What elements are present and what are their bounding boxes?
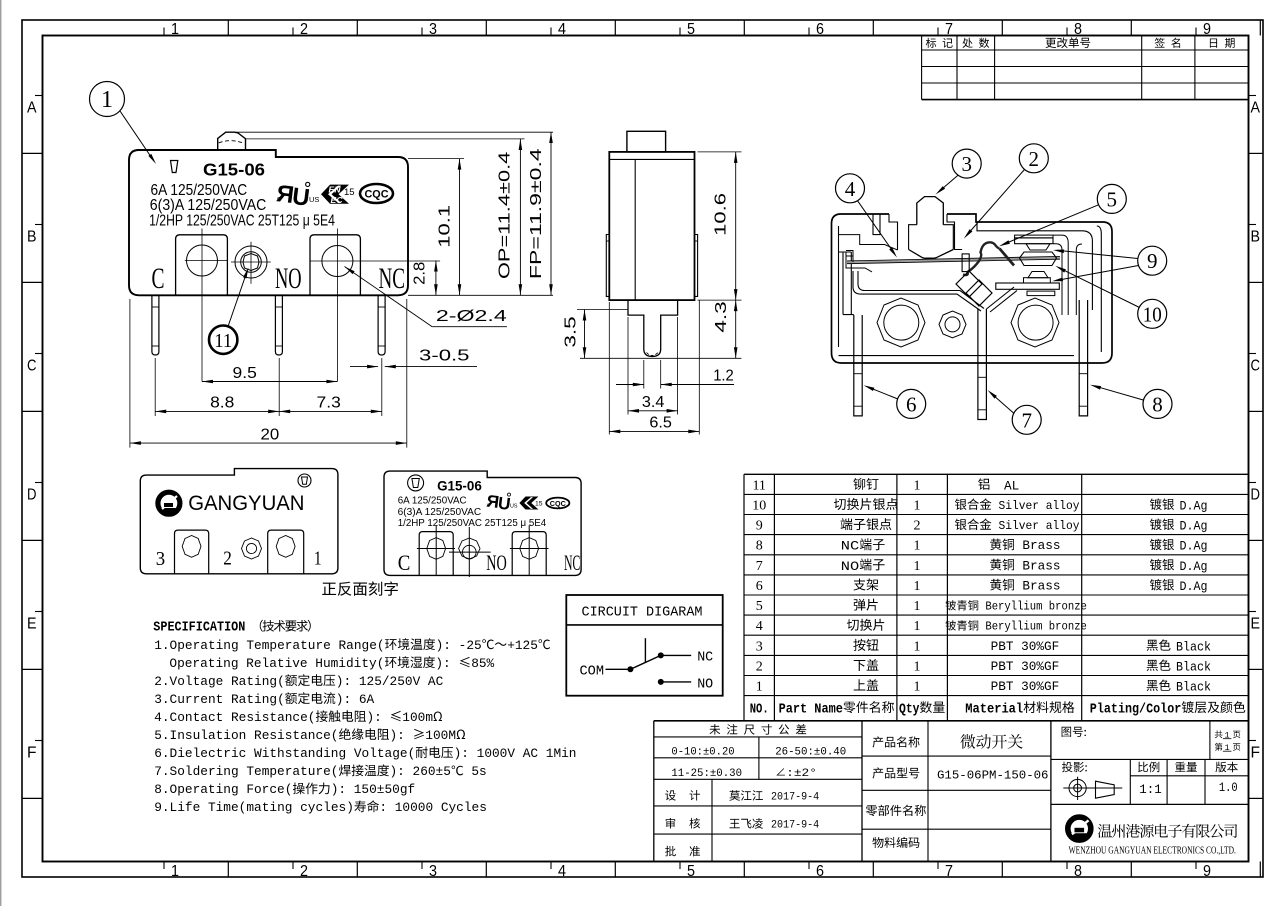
svg-text:4: 4 [845,177,856,201]
svg-text:8.Operating Force(: 8.Operating Force( [154,782,292,797]
svg-text:): 260±5: ): 260±5 [390,764,451,779]
svg-text:c: c [277,194,281,203]
svg-text:E: E [1251,616,1261,633]
svg-text:11: 11 [752,478,765,493]
svg-text:1: 1 [914,619,921,634]
svg-text:G15-06PM-150-06: G15-06PM-150-06 [937,768,1049,782]
svg-text:1.0: 1.0 [1219,781,1238,795]
svg-text:1: 1 [914,539,921,554]
svg-text:WENZHOU GANGYUAN ELECTRONICS C: WENZHOU GANGYUAN ELECTRONICS CO.,LTD. [1069,846,1236,857]
svg-text:: 10000 Cycles: : 10000 Cycles [379,800,487,815]
svg-text:6A 125/250VAC: 6A 125/250VAC [398,496,467,507]
svg-text:NO: NO [275,262,302,295]
svg-text:2.8: 2.8 [412,262,429,285]
svg-text:1: 1 [171,21,179,38]
svg-text:GANGYUAN: GANGYUAN [188,492,304,515]
svg-text:9: 9 [1203,863,1211,880]
svg-text:Qty: Qty [899,703,920,718]
svg-text:C: C [398,550,411,575]
svg-text:6.5: 6.5 [649,415,672,432]
svg-text:4: 4 [756,619,763,634]
svg-text:Silver alloy: Silver alloy [992,499,1080,513]
svg-text:5: 5 [687,21,695,38]
svg-text:7: 7 [945,21,953,38]
svg-text:5s: 5s [464,764,487,779]
svg-text:2.Voltage Rating(: 2.Voltage Rating( [154,674,285,689]
svg-text:5: 5 [756,599,763,614]
svg-text:F: F [1251,745,1261,762]
svg-text:4: 4 [558,863,566,880]
svg-text:15: 15 [535,500,543,507]
svg-text:26-50:±0.40: 26-50:±0.40 [775,747,846,759]
svg-text:Beryllium bronze: Beryllium bronze [979,621,1087,634]
svg-text:6: 6 [756,579,763,594]
svg-text:7.Soldering Temperature(: 7.Soldering Temperature( [154,764,338,779]
svg-text:1: 1 [914,660,921,675]
svg-text:Black: Black [1176,640,1211,654]
svg-text:5: 5 [1107,187,1118,211]
svg-text:PBT 30%GF: PBT 30%GF [991,679,1060,694]
svg-text:):: ): [390,728,413,743]
svg-text:7: 7 [756,559,763,574]
svg-text:8: 8 [1074,863,1082,880]
svg-text:NO: NO [486,550,507,575]
svg-text:D: D [27,487,37,504]
svg-text:EN: EN [329,185,342,195]
svg-text:1: 1 [914,680,921,695]
svg-text:1/2HP 125/250VAC 25T125 μ 5E4: 1/2HP 125/250VAC 25T125 μ 5E4 [149,213,335,230]
svg-text:G15-06: G15-06 [203,159,265,179]
svg-text:5: 5 [687,863,695,880]
svg-text:D.Ag: D.Ag [1180,580,1208,594]
svg-text:Plating/Color: Plating/Color [1090,703,1182,718]
svg-text:0-10:±0.20: 0-10:±0.20 [671,747,734,759]
svg-text:A: A [27,100,37,117]
svg-text:D.Ag: D.Ag [1180,540,1208,554]
svg-text:1:1: 1:1 [1139,783,1162,797]
svg-text:B: B [1251,229,1261,246]
svg-text:NC: NC [564,550,580,575]
svg-text:2-Ø2.4: 2-Ø2.4 [436,308,507,325]
svg-text:15: 15 [344,187,355,198]
svg-text:Brass: Brass [1015,558,1061,573]
svg-text:c: c [487,503,490,509]
svg-text:E: E [27,616,37,633]
svg-text:): 1000V AC 1Min: ): 1000V AC 1Min [454,746,577,761]
svg-text:6: 6 [906,392,917,416]
svg-text:PBT 30%GF: PBT 30%GF [991,659,1060,674]
svg-text:D.Ag: D.Ag [1180,560,1208,574]
svg-text:9.5: 9.5 [233,365,257,382]
svg-text:3-0.5: 3-0.5 [419,347,470,364]
svg-text:D.Ag: D.Ag [1180,499,1208,513]
svg-text:Operating Relative Humidity(: Operating Relative Humidity( [169,656,384,671]
svg-text:10: 10 [1143,302,1162,326]
svg-text:6(3)A 125/250VAC: 6(3)A 125/250VAC [398,507,482,518]
svg-text:2: 2 [300,863,308,880]
svg-text:4: 4 [558,21,566,38]
svg-text:1: 1 [914,599,921,614]
svg-text::±2°: :±2° [786,768,817,780]
svg-text:C: C [152,262,165,295]
svg-text:2017-9-4: 2017-9-4 [771,819,820,831]
svg-text:EC: EC [331,195,344,205]
svg-text:NO: NO [841,559,860,574]
svg-text:9: 9 [1203,21,1211,38]
svg-text:11: 11 [214,330,232,352]
svg-text:PBT 30%GF: PBT 30%GF [991,639,1060,654]
svg-text:F: F [27,745,37,762]
svg-text:3: 3 [961,152,972,176]
svg-text:1: 1 [914,559,921,574]
svg-text:):: ): [367,710,390,725]
svg-text:C: C [27,358,37,375]
svg-text:AL: AL [1004,478,1019,493]
svg-text:Beryllium bronze: Beryllium bronze [979,601,1087,614]
svg-text:US: US [510,503,518,509]
svg-text:4.3: 4.3 [713,301,730,333]
svg-text:NC: NC [379,262,406,295]
svg-text:3.Current Rating(: 3.Current Rating( [154,692,285,707]
svg-text:NC: NC [841,539,860,554]
svg-text:): -25: ): -25 [436,638,482,653]
svg-text:US: US [309,195,319,204]
svg-text:D.Ag: D.Ag [1180,520,1208,534]
svg-text:8: 8 [1074,21,1082,38]
svg-text:): 6A: ): 6A [336,692,375,707]
svg-text:Material: Material [965,703,1023,718]
svg-text:CQC: CQC [550,499,567,508]
svg-text:): 150±50gf: ): 150±50gf [331,782,416,797]
svg-text:8: 8 [756,539,763,554]
svg-text:6: 6 [816,863,824,880]
svg-text:1: 1 [756,680,763,695]
svg-text:1: 1 [914,579,921,594]
svg-text:SPECIFICATION: SPECIFICATION [153,620,245,636]
svg-text:Brass: Brass [1015,538,1061,553]
svg-text:NO: NO [697,677,713,692]
svg-text:8.8: 8.8 [210,395,234,412]
svg-text:1: 1 [914,478,921,493]
svg-text:4.Contact Resistance(: 4.Contact Resistance( [154,710,315,725]
svg-text:6: 6 [816,21,824,38]
svg-text:1/2HP 125/250VAC 25T125 μ 5E4: 1/2HP 125/250VAC 25T125 μ 5E4 [398,518,547,529]
svg-text:3.4: 3.4 [642,394,665,411]
svg-text:A: A [1251,100,1261,117]
svg-text:Silver alloy: Silver alloy [992,519,1080,533]
svg-text:3: 3 [756,639,763,654]
svg-text:3.5: 3.5 [563,316,580,348]
svg-text:9.Life Time(mating cycles): 9.Life Time(mating cycles) [154,800,354,815]
svg-text:7.3: 7.3 [317,395,341,412]
svg-text:2: 2 [1029,147,1040,171]
svg-text:B: B [27,229,37,246]
svg-text:2017-9-4: 2017-9-4 [771,791,820,803]
svg-text:CIRCUIT DIGARAM: CIRCUIT DIGARAM [582,605,703,621]
svg-text:COM: COM [580,665,605,680]
svg-text:2: 2 [223,547,232,569]
svg-text:1: 1 [914,498,921,513]
svg-text:10.1: 10.1 [437,205,454,248]
svg-text:3: 3 [429,863,437,880]
svg-text:1.2: 1.2 [713,368,734,385]
svg-text:1: 1 [314,547,322,569]
svg-text:6.Dielectric Withstanding Volt: 6.Dielectric Withstanding Voltage( [154,746,415,761]
svg-text:100m: 100m [402,710,433,725]
svg-text:NC: NC [697,651,713,666]
svg-text:1: 1 [171,863,179,880]
svg-text:NO.: NO. [750,703,769,718]
svg-text:G15-06: G15-06 [437,479,482,494]
svg-text:9: 9 [1147,249,1158,273]
svg-text:100M: 100M [425,728,456,743]
svg-text:OP=11.4±0.4: OP=11.4±0.4 [497,151,514,279]
svg-text:85%: 85% [471,656,494,671]
svg-text:10: 10 [752,498,766,513]
svg-text:9: 9 [756,519,763,534]
svg-text:Black: Black [1176,661,1211,675]
svg-text:10.6: 10.6 [712,193,729,236]
svg-text:Brass: Brass [1015,579,1061,594]
svg-text:5.Insulation Resistance(: 5.Insulation Resistance( [154,728,338,743]
svg-text:1: 1 [914,639,921,654]
svg-text:20: 20 [261,426,280,443]
svg-text:+125: +125 [507,638,538,653]
svg-text:11-25:±0.30: 11-25:±0.30 [671,768,742,780]
svg-text:Black: Black [1176,681,1211,695]
svg-text:CQC: CQC [365,189,389,201]
svg-text:): 125/250V AC: ): 125/250V AC [336,674,444,689]
svg-text:7: 7 [945,863,953,880]
svg-text:):: ): [435,656,458,671]
svg-text:3: 3 [429,21,437,38]
svg-text:2: 2 [756,660,763,675]
svg-text:8: 8 [1152,392,1163,416]
svg-text:2: 2 [914,519,921,534]
svg-text:D: D [1251,487,1261,504]
svg-text:1: 1 [101,87,113,113]
svg-text:7: 7 [1021,408,1032,432]
svg-text:Part Name: Part Name [779,703,843,718]
svg-text:1.Operating Temperature Range(: 1.Operating Temperature Range( [154,638,384,653]
svg-text:3: 3 [156,548,165,570]
svg-text:C: C [1251,358,1261,375]
svg-text:2: 2 [300,21,308,38]
svg-text:FP=11.9±0.4: FP=11.9±0.4 [528,148,545,279]
